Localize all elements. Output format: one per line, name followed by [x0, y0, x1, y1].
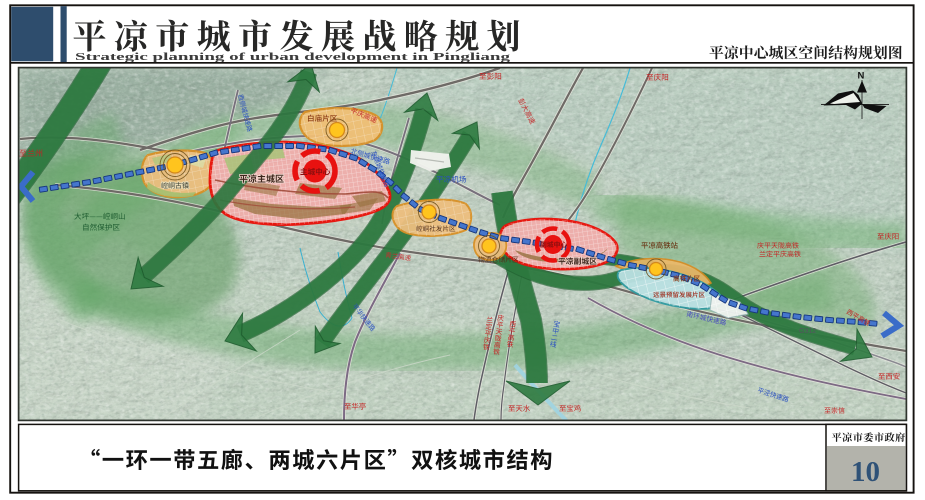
- svg-text:G312: G312: [799, 328, 816, 335]
- svg-text:10: 10: [851, 456, 880, 488]
- svg-text:Strategic planning of urban de: Strategic planning of urban development …: [75, 51, 511, 63]
- svg-text:N: N: [858, 71, 865, 82]
